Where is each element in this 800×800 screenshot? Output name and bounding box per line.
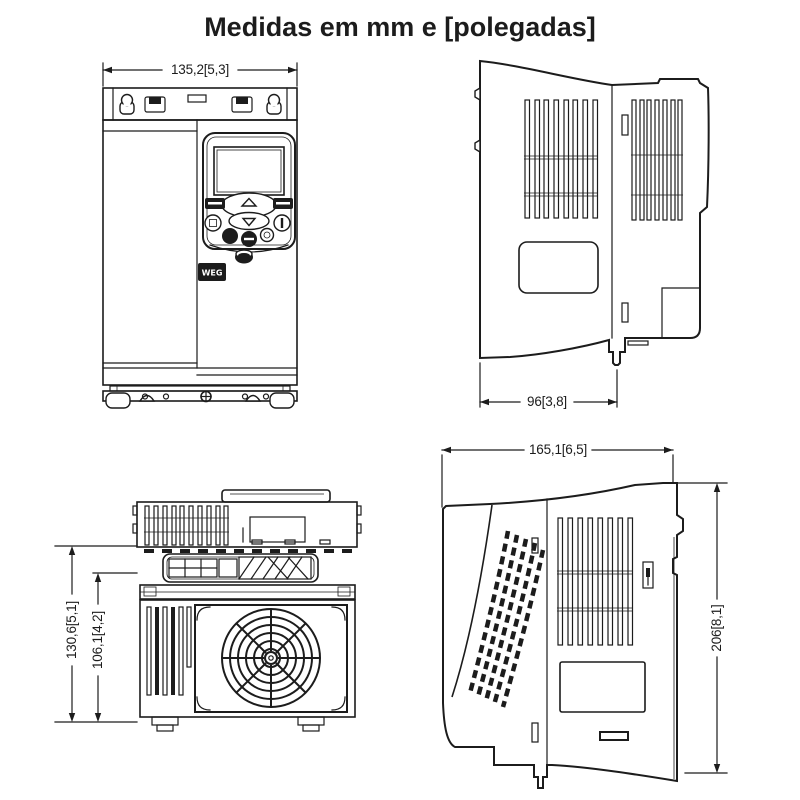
terminal-opening xyxy=(250,517,305,542)
page-title: Medidas em mm e [polegadas] xyxy=(0,12,800,43)
keypad-softkey-right xyxy=(273,198,293,209)
weg-logo-text: WEG xyxy=(202,269,223,278)
keypad-bump xyxy=(222,490,330,502)
weg-logo: WEG xyxy=(198,263,226,281)
top-inner-dimension: 106,1[4,2] xyxy=(90,573,137,722)
right-depth-dimension: 96[3,8] xyxy=(480,363,617,409)
cover-hatch xyxy=(239,557,311,579)
foot-right xyxy=(270,393,294,408)
keypad-nav-cluster xyxy=(222,193,276,230)
top-view: 130,6[5,1] 106,1[4,2] xyxy=(40,440,370,750)
front-view: 135,2[5,3] xyxy=(60,55,320,420)
fan-section xyxy=(140,600,355,731)
din-notch xyxy=(475,140,480,152)
keypad xyxy=(203,133,295,252)
keypad-button-dark xyxy=(222,228,238,244)
side-outline xyxy=(475,61,709,365)
mounting-hole xyxy=(264,394,269,399)
top-vent-slots xyxy=(144,506,229,545)
fan-guard xyxy=(195,605,347,712)
front-width-label: 135,2[5,3] xyxy=(171,62,229,77)
bracket-clip-left xyxy=(145,97,165,112)
top-mounting-bracket xyxy=(103,88,297,120)
center-screw xyxy=(201,392,211,402)
din-notch xyxy=(475,88,480,100)
lower-band xyxy=(140,585,355,599)
right-depth-label: 96[3,8] xyxy=(527,394,567,409)
keypad-button-circle xyxy=(261,229,274,242)
keypad-button-minus xyxy=(241,231,257,247)
right-side-view: 96[3,8] xyxy=(440,55,740,430)
top-outer-label: 130,6[5,1] xyxy=(64,601,79,659)
mounting-hole xyxy=(164,394,169,399)
top-inner-label: 106,1[4,2] xyxy=(90,611,105,669)
knob xyxy=(235,250,253,264)
left-height-dimension: 206[8,1] xyxy=(678,483,727,773)
left-depth-label: 165,1[6,5] xyxy=(529,442,587,457)
keyhole-slot-left xyxy=(120,95,134,115)
left-height-label: 206[8,1] xyxy=(709,604,724,651)
top-section xyxy=(133,502,361,547)
bottom-mounting-bracket xyxy=(103,386,297,408)
bracket-clip-right xyxy=(232,97,252,112)
keypad-softkey-left xyxy=(205,198,225,209)
keypad-button-menu xyxy=(205,215,221,231)
keypad-button-power xyxy=(274,215,290,231)
foot-left xyxy=(106,393,130,408)
mounting-hole xyxy=(243,394,248,399)
fan-side-slots xyxy=(147,607,191,695)
bracket-slot xyxy=(188,95,206,102)
terminal-cover-band xyxy=(163,554,318,582)
front-width-dimension: 135,2[5,3] xyxy=(103,62,297,86)
left-side-view: 165,1[6,5] xyxy=(430,435,750,795)
bottom-feet xyxy=(152,717,324,731)
keyhole-slot-right xyxy=(267,95,281,115)
gasket-dashes xyxy=(144,549,352,553)
